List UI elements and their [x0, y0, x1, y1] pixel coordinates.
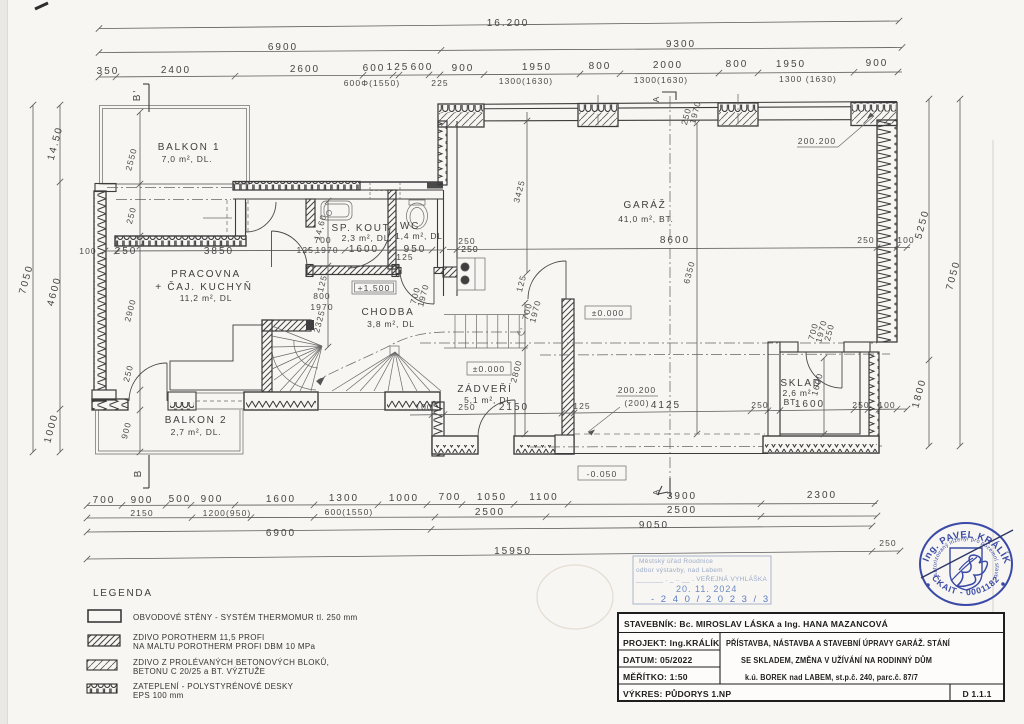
svg-text:+ ČAJ. KUCHYŇ: + ČAJ. KUCHYŇ	[155, 280, 252, 293]
svg-text:2150: 2150	[130, 508, 153, 518]
svg-text:PŘÍSTAVBA, NÁSTAVBA A STAVEBNÍ: PŘÍSTAVBA, NÁSTAVBA A STAVEBNÍ ÚPRAVY GA…	[726, 637, 950, 648]
svg-text:BALKON 2: BALKON 2	[165, 415, 228, 426]
svg-text:CHODBA: CHODBA	[362, 307, 415, 318]
svg-text:1950: 1950	[522, 62, 552, 73]
svg-text:A: A	[651, 96, 661, 103]
svg-text:200.200: 200.200	[798, 136, 836, 146]
svg-text:2,7 m², DL.: 2,7 m², DL.	[171, 427, 222, 437]
svg-text:3900: 3900	[667, 491, 697, 502]
svg-text:BETONU C 20/25 a BT. VÝZTUŽE: BETONU C 20/25 a BT. VÝZTUŽE	[133, 667, 265, 676]
svg-text:6900: 6900	[268, 42, 298, 53]
svg-text:125,: 125,	[297, 245, 318, 255]
svg-text:125: 125	[573, 401, 590, 411]
svg-text:(200): (200)	[624, 398, 649, 408]
svg-text:200.200: 200.200	[618, 385, 656, 395]
svg-text:±0.000: ±0.000	[592, 308, 625, 318]
svg-text:1300(1630): 1300(1630)	[499, 76, 553, 86]
svg-text:600(1550): 600(1550)	[325, 507, 374, 517]
svg-text:250: 250	[879, 538, 896, 548]
svg-text:2150: 2150	[499, 402, 529, 413]
svg-text:900: 900	[201, 494, 224, 505]
svg-text:2500: 2500	[667, 505, 697, 516]
svg-text:3850: 3850	[204, 246, 234, 257]
svg-text:900: 900	[866, 58, 889, 69]
svg-text:1200(950): 1200(950)	[203, 508, 252, 518]
svg-text:Městský úřad Roudnice: Městský úřad Roudnice	[639, 558, 713, 565]
svg-text:100: 100	[897, 235, 914, 245]
svg-text:2400: 2400	[161, 65, 191, 76]
svg-text:250: 250	[751, 400, 768, 410]
svg-text:B: B	[133, 469, 144, 478]
svg-text:900: 900	[131, 495, 154, 506]
svg-text:125: 125	[396, 252, 413, 262]
svg-text:SE SKLADEM, ZMĚNA V UŽÍVÁNÍ NA: SE SKLADEM, ZMĚNA V UŽÍVÁNÍ NA RODINNÝ D…	[741, 654, 932, 665]
svg-text:1300(1630): 1300(1630)	[634, 75, 688, 85]
svg-text:EPS 100 mm: EPS 100 mm	[133, 691, 184, 700]
svg-text:3,8 m², DL: 3,8 m², DL	[367, 319, 415, 329]
svg-text:800: 800	[726, 59, 749, 70]
svg-text:250: 250	[857, 235, 874, 245]
svg-text:250: 250	[458, 236, 475, 246]
svg-text:LEGENDA: LEGENDA	[93, 588, 153, 599]
svg-text:20. 11. 2024: 20. 11. 2024	[676, 584, 737, 594]
svg-text:7,0 m², DL.: 7,0 m², DL.	[162, 154, 213, 164]
svg-text:250: 250	[115, 246, 138, 257]
svg-text:100: 100	[79, 246, 96, 256]
svg-text:PRACOVNA: PRACOVNA	[171, 269, 241, 280]
svg-text:ZDIVO POROTHERM 11,5 PROFI: ZDIVO POROTHERM 11,5 PROFI	[133, 633, 265, 642]
svg-text:-0.050: -0.050	[587, 469, 618, 479]
svg-text:DATUM: 05/2022: DATUM: 05/2022	[623, 655, 693, 665]
svg-text:1300 (1630): 1300 (1630)	[779, 74, 837, 84]
svg-text:125: 125	[387, 62, 410, 73]
svg-text:2,3 m², DL.: 2,3 m², DL.	[342, 233, 393, 243]
svg-text:9300: 9300	[666, 39, 696, 50]
svg-text:8600: 8600	[660, 235, 690, 246]
svg-text:9050: 9050	[639, 520, 669, 531]
svg-text:700: 700	[439, 492, 462, 503]
svg-text:2000: 2000	[653, 60, 683, 71]
svg-text:D 1.1.1: D 1.1.1	[962, 689, 991, 699]
svg-text:A: A	[651, 489, 661, 496]
svg-text:100: 100	[415, 402, 432, 412]
svg-text:600: 600	[363, 63, 386, 74]
svg-text:B': B'	[132, 89, 143, 102]
svg-text:- 2 4 0 / 2 0 2 3 / 3: - 2 4 0 / 2 0 2 3 / 3	[651, 594, 770, 605]
svg-text:800: 800	[589, 61, 612, 72]
svg-text:PROJEKT: Ing.KRÁLÍK: PROJEKT: Ing.KRÁLÍK	[623, 638, 720, 648]
svg-text:STAVEBNÍK: Bc. MIROSLAV LÁSKA: STAVEBNÍK: Bc. MIROSLAV LÁSKA a Ing. HAN…	[624, 619, 888, 629]
svg-text:+1.500: +1.500	[358, 283, 391, 293]
svg-text:NA MALTU POROTHERM PROFI DBM 1: NA MALTU POROTHERM PROFI DBM 10 MPa	[133, 642, 316, 651]
svg-text:1600: 1600	[795, 399, 825, 410]
svg-text:1600: 1600	[266, 494, 296, 505]
svg-text:1000: 1000	[389, 493, 419, 504]
svg-text:ZÁDVEŘÍ: ZÁDVEŘÍ	[457, 382, 512, 395]
svg-text:BT.: BT.	[784, 397, 799, 407]
svg-text:1970: 1970	[315, 245, 338, 255]
svg-text:_______ . _ .. __ . VEŘEJNÁ: _______ . _ .. __ . VEŘEJNÁ VYHLÁŠKA	[635, 574, 767, 583]
svg-text:225: 225	[431, 78, 448, 88]
svg-text:2600: 2600	[290, 64, 320, 75]
svg-text:MĚŘÍTKO: 1:50: MĚŘÍTKO: 1:50	[623, 671, 688, 682]
svg-text:2500: 2500	[475, 507, 505, 518]
svg-text:6900: 6900	[266, 528, 296, 539]
svg-text:2300: 2300	[807, 490, 837, 501]
svg-text:41,0 m², BT.: 41,0 m², BT.	[618, 214, 673, 224]
svg-text:±0.000: ±0.000	[473, 364, 506, 374]
svg-text:VÝKRES: PŮDORYS 1.NP: VÝKRES: PŮDORYS 1.NP	[623, 688, 731, 699]
svg-text:350: 350	[97, 66, 120, 77]
svg-text:ZATEPLENÍ - POLYSTYRÉNOVÉ DESK: ZATEPLENÍ - POLYSTYRÉNOVÉ DESKY	[133, 682, 294, 691]
svg-text:15950: 15950	[494, 546, 532, 557]
svg-text:k.ú. BOREK nad LABEM, st.p.č.: k.ú. BOREK nad LABEM, st.p.č. 240, parc.…	[745, 672, 918, 682]
svg-text:odbor výstavby, nad Labem: odbor výstavby, nad Labem	[636, 567, 723, 574]
svg-text:700: 700	[93, 495, 116, 506]
svg-text:250: 250	[458, 402, 475, 412]
svg-text:OBVODOVÉ STĚNY - SYSTÉM THERMO: OBVODOVÉ STĚNY - SYSTÉM THERMOMUR tl. 25…	[133, 613, 357, 622]
svg-text:1100: 1100	[529, 492, 559, 503]
svg-text:900: 900	[452, 63, 475, 74]
svg-text:100: 100	[878, 400, 895, 410]
svg-text:1300: 1300	[329, 493, 359, 504]
svg-text:1950: 1950	[776, 59, 806, 70]
svg-text:16.200: 16.200	[487, 18, 530, 29]
svg-text:1600: 1600	[349, 244, 379, 255]
svg-text:250: 250	[852, 400, 869, 410]
svg-text:BALKON 1: BALKON 1	[158, 142, 221, 153]
svg-text:600: 600	[411, 62, 434, 73]
svg-text:ZDIVO Z PROLÉVANÝCH BETONOVÝCH: ZDIVO Z PROLÉVANÝCH BETONOVÝCH BLOKŮ,	[133, 658, 329, 667]
svg-text:11,2 m², DL: 11,2 m², DL	[180, 293, 233, 303]
svg-text:1,4 m², DL: 1,4 m², DL	[395, 231, 443, 241]
svg-text:GARÁŽ: GARÁŽ	[624, 198, 667, 211]
svg-text:4125: 4125	[651, 400, 681, 411]
svg-text:1050: 1050	[477, 492, 507, 503]
svg-text:600Φ(1550): 600Φ(1550)	[344, 78, 401, 88]
svg-text:500: 500	[169, 494, 192, 505]
